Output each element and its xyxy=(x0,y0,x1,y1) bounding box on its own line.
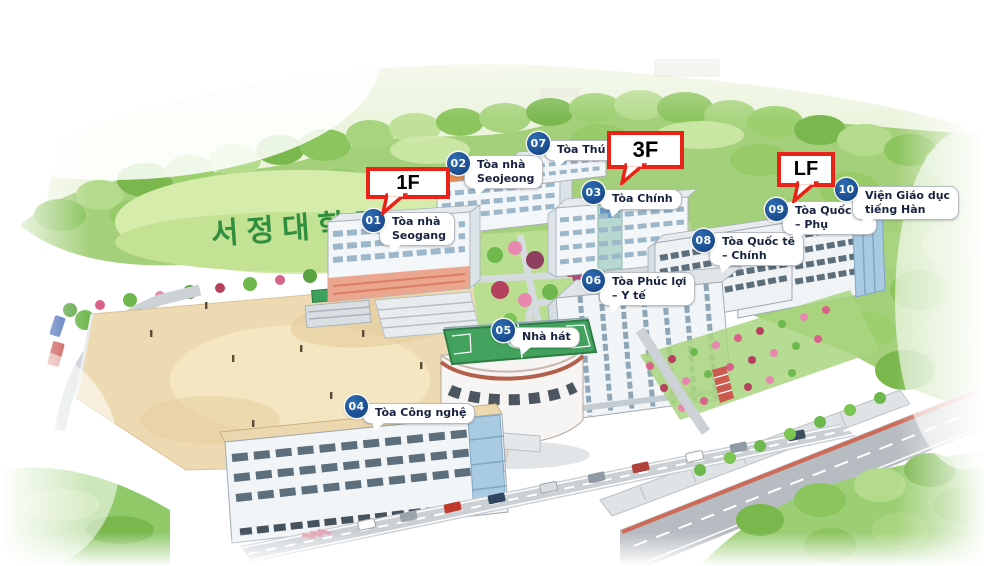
marker-number: 08 xyxy=(692,229,715,252)
floor-callout-lf: LF xyxy=(777,152,835,187)
marker-label: Tòa nhà Seogang xyxy=(379,212,455,246)
marker-number: 10 xyxy=(835,178,858,201)
building-marker-05: 05 Nhà hát xyxy=(492,319,580,348)
marker-number: 02 xyxy=(447,152,470,175)
floor-callout-3f: 3F xyxy=(607,131,684,169)
floor-callout-label: LF xyxy=(794,158,818,181)
building-marker-01: 01 Tòa nhà Seogang xyxy=(362,209,455,246)
marker-number: 06 xyxy=(582,269,605,292)
marker-label: Nhà hát xyxy=(509,327,580,348)
floor-callout-label: 3F xyxy=(633,137,659,163)
campus-map: 서정대학교 xyxy=(0,0,986,566)
callout-tail xyxy=(617,161,647,185)
marker-label: Tòa Chính xyxy=(599,189,682,210)
building-marker-04: 04 Tòa Công nghệ xyxy=(345,395,475,424)
floor-callout-1f: 1F xyxy=(366,167,450,199)
marker-number: 09 xyxy=(765,198,788,221)
marker-label: Tòa Quốc tế – Chính xyxy=(709,232,804,266)
callout-tail xyxy=(789,179,819,203)
campus-illustration: 서정대학교 xyxy=(0,0,986,566)
marker-number: 05 xyxy=(492,319,515,342)
marker-number: 04 xyxy=(345,395,368,418)
marker-label: Viện Giáo dục tiếng Hàn xyxy=(852,186,959,220)
marker-label: Tòa Phúc lợi – Y tế xyxy=(599,272,695,306)
building-marker-03: 03 Tòa Chính xyxy=(582,181,682,210)
marker-label: Tòa Công nghệ xyxy=(362,403,475,424)
marker-number: 03 xyxy=(582,181,605,204)
callout-tail xyxy=(378,191,408,215)
marker-number: 07 xyxy=(527,132,550,155)
building-marker-06: 06 Tòa Phúc lợi – Y tế xyxy=(582,269,695,306)
building-marker-10: 10 Viện Giáo dục tiếng Hàn xyxy=(835,178,959,220)
